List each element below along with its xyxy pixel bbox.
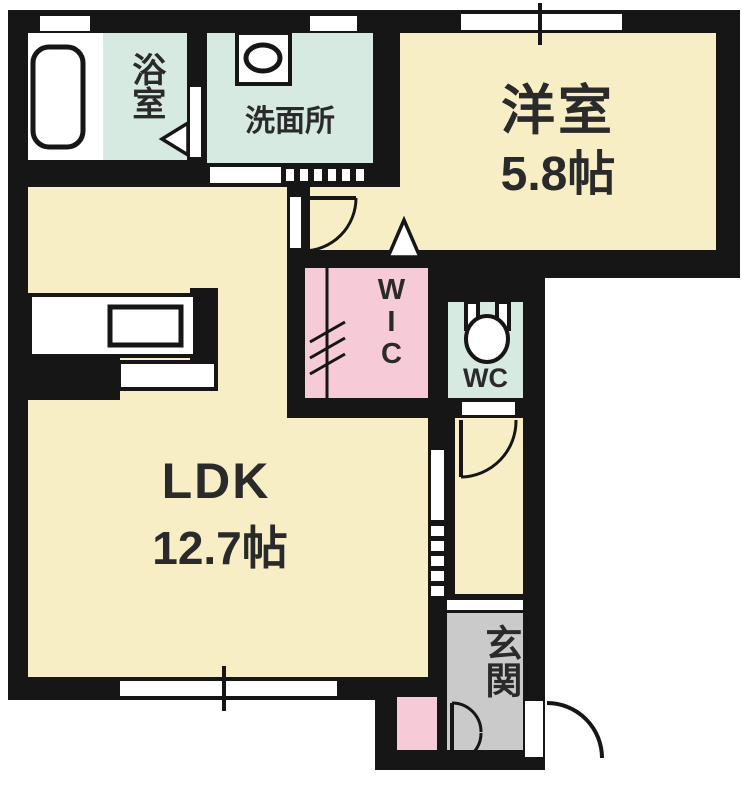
- door-swing-arc: [461, 420, 516, 477]
- western-room-label: 洋室: [400, 83, 716, 140]
- bathtub-icon: [33, 47, 83, 147]
- washroom-label: 洗面所: [207, 106, 373, 138]
- entry-triangle-icon: [388, 220, 420, 257]
- toilet-icon: [466, 302, 509, 362]
- door-swing-arc: [452, 703, 481, 762]
- ldk-area: 12.7帖: [70, 524, 370, 572]
- door-swing-arc: [547, 703, 602, 758]
- western-room-area: 5.8帖: [400, 150, 716, 200]
- entry-triangle-icon: [162, 123, 188, 155]
- ldk-label: LDK: [66, 455, 366, 508]
- floor-plan: 浴室 洗面所 洋室 5.8帖 LDK 12.7帖 WIC WC 玄関: [0, 0, 742, 800]
- wic-label: WIC: [376, 274, 406, 389]
- door-swing-arc: [303, 198, 356, 251]
- folding-door-icon: [310, 268, 345, 398]
- entrance-label: 玄関: [480, 624, 519, 716]
- washing-machine-icon: [237, 33, 290, 84]
- bathroom-label: 浴室: [127, 52, 163, 142]
- wc-label: WC: [448, 364, 523, 392]
- kitchen-counter-icon: [30, 295, 216, 389]
